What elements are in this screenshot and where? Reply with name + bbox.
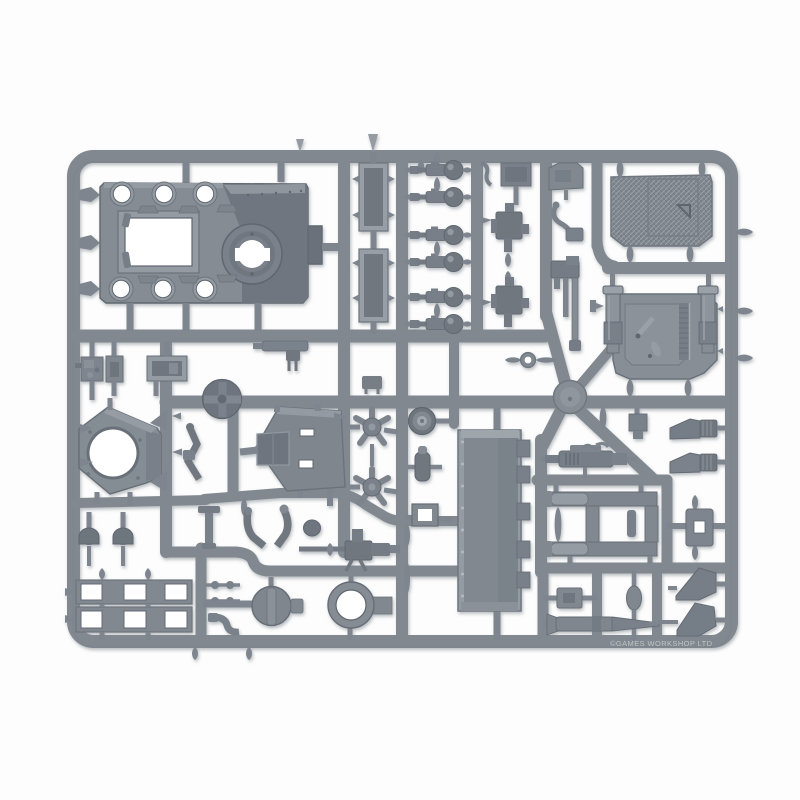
svg-text:©GAMES WORKSHOP LTD: ©GAMES WORKSHOP LTD <box>610 639 713 648</box>
